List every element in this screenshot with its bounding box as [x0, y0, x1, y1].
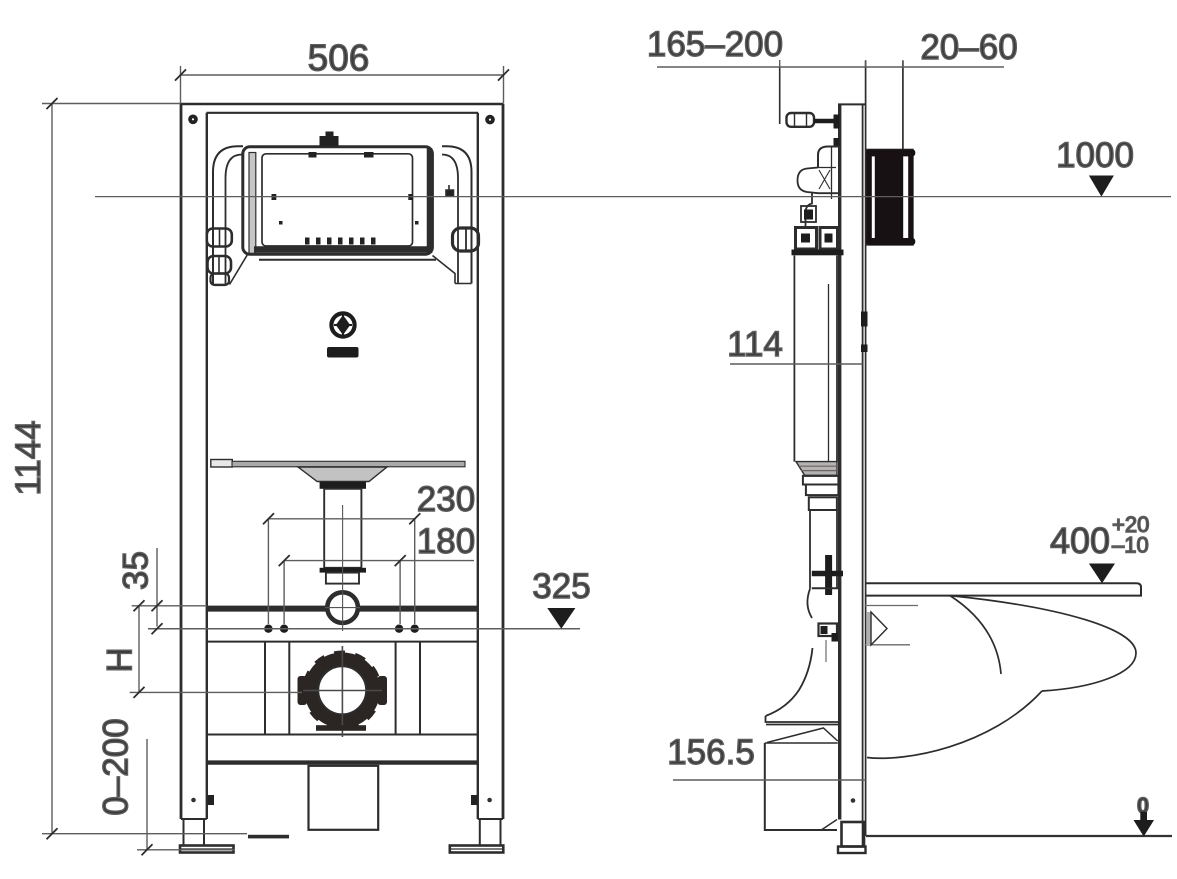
svg-text:0–200: 0–200 [97, 718, 136, 815]
svg-text:20–60: 20–60 [920, 28, 1017, 67]
svg-text:35: 35 [117, 551, 156, 590]
svg-text:230: 230 [417, 480, 475, 519]
svg-text:H: H [101, 647, 140, 672]
svg-text:400: 400 [1050, 520, 1110, 561]
svg-text:180: 180 [417, 522, 475, 561]
svg-text:165–200: 165–200 [647, 25, 783, 64]
svg-text:325: 325 [532, 567, 590, 606]
svg-text:1144: 1144 [9, 420, 48, 495]
svg-text:114: 114 [727, 325, 783, 364]
svg-text:1000: 1000 [1056, 136, 1134, 175]
svg-text:506: 506 [308, 38, 370, 79]
svg-text:–10: –10 [1112, 533, 1149, 558]
svg-text:156.5: 156.5 [667, 733, 755, 772]
